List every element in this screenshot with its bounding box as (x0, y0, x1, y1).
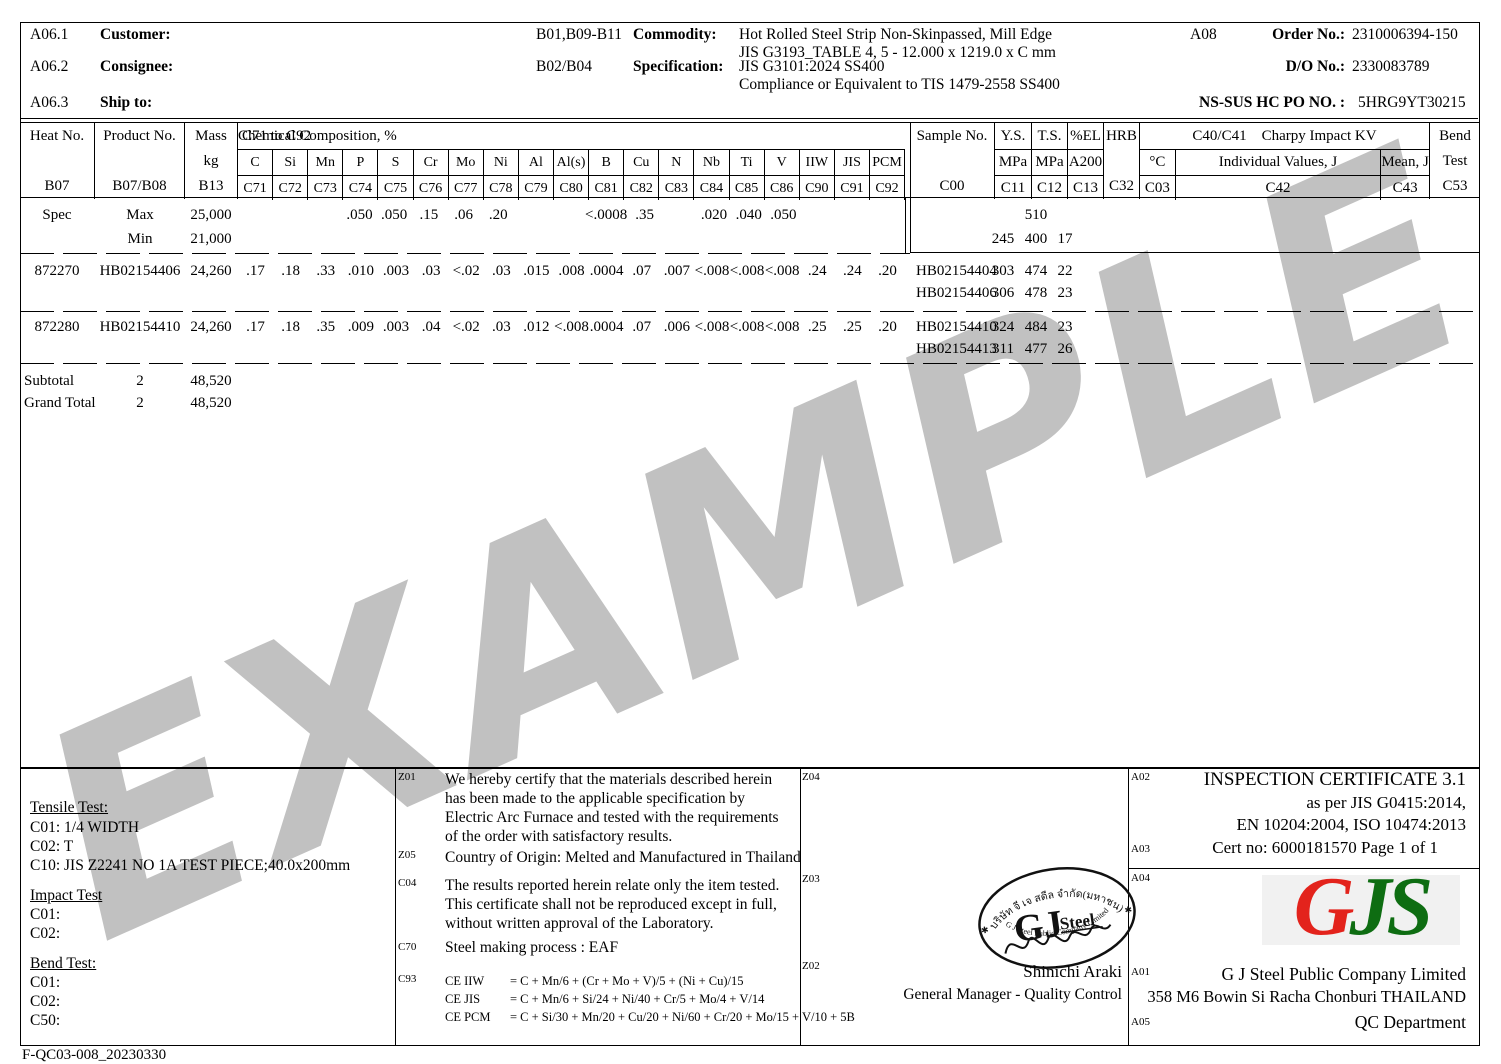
row2-sample2-ys: 311 (992, 338, 1014, 360)
row2-mass: 24,260 (190, 316, 231, 338)
ce-pcm-formula: = C + Si/30 + Mn/20 + Cu/20 + Ni/60 + Cr… (510, 1008, 855, 1026)
spec-max-label: Max (126, 204, 154, 226)
col-bend: BendTestC53 (1430, 123, 1480, 199)
z04-label: Z04 (802, 771, 820, 783)
z05-label: Z05 (398, 849, 416, 861)
bottom-divider-1 (395, 768, 396, 1045)
ce-jis-name: CE JIS (445, 990, 480, 1008)
row2-sample2-ts: 477 (1025, 338, 1048, 360)
field-code-b02: B02/B04 (536, 58, 592, 76)
signer-title: General Manager - Quality Control (800, 986, 1122, 1004)
row2-sample1-ts: 484 (1025, 316, 1048, 338)
ce-iiw-formula: = C + Mn/6 + (Cr + Mo + V)/5 + (Ni + Cu)… (510, 972, 744, 990)
cert-number: Cert no: 6000181570 Page 1 of 1 (1130, 838, 1466, 858)
row1-mass: 24,260 (190, 260, 231, 282)
subtotal-label: Subtotal (24, 370, 74, 392)
tensile-c01: C01: 1/4 WIDTH (30, 818, 139, 837)
col-hrb: HRBC32 (1104, 123, 1140, 199)
mass-code: B13 (185, 174, 237, 199)
row2-sample1-ys: 324 (992, 316, 1015, 338)
row1-sample1-el: 22 (1058, 260, 1073, 282)
z01-label: Z01 (398, 771, 416, 783)
do-no-value: 2330083789 (1352, 58, 1430, 76)
chemical-composition-header: C71 to C92 Chemical Composition, % CC71 … (238, 123, 905, 199)
stamp-gj-text: GJ (1011, 903, 1065, 951)
row1-sample1-ys: 303 (992, 260, 1015, 282)
charpy-title: Charpy Impact KV (1262, 128, 1377, 144)
grand-total-label: Grand Total (24, 392, 96, 414)
row1-sample2-el: 23 (1058, 282, 1073, 304)
c93-label: C93 (398, 973, 416, 985)
specification-line1: JIS G3101:2024 SS400 (739, 58, 885, 76)
consignee-label: Consignee: (100, 58, 173, 76)
ce-iiw-name: CE IIW (445, 972, 484, 990)
row2-sample2-el: 26 (1058, 338, 1073, 360)
row2-sample1-el: 23 (1058, 316, 1073, 338)
subtotal-count: 2 (136, 370, 144, 392)
gjs-logo: GJS (1262, 875, 1460, 945)
shipto-label: Ship to: (100, 94, 152, 112)
field-code-a062: A06.2 (30, 58, 68, 76)
z01-line3: Electric Arc Furnace and tested with the… (445, 808, 779, 827)
col-ts: T.S.MPaC12 (1032, 123, 1068, 199)
c04-line2: This certificate shall not be reproduced… (445, 895, 777, 914)
c04-line1: The results reported herein relate only … (445, 876, 779, 895)
bend-c50: C50: (30, 1011, 60, 1030)
row2-sample2-no: HB02154413 (916, 338, 997, 360)
charpy-title-row: C40/C41 Charpy Impact KV (1140, 123, 1429, 150)
table-header: Heat No. B07 Product No. B07/B08 Mass kg… (20, 122, 1480, 198)
spec-mass-min: 21,000 (190, 228, 231, 250)
row1-separator (20, 311, 1480, 312)
specification-label: Specification: (633, 58, 723, 76)
row2-sample1-no: HB02154410 (916, 316, 997, 338)
mass-label: Mass (185, 123, 237, 149)
row1-product-no: HB02154406 (100, 260, 181, 282)
col-mass: Mass kg B13 (185, 123, 238, 199)
col-heat-no: Heat No. B07 (20, 123, 95, 199)
stamp-star-left: ✱ (980, 925, 989, 936)
impact-test-title: Impact Test (30, 886, 102, 905)
col-charpy: C40/C41 Charpy Impact KV °CC03 Individua… (1140, 123, 1430, 199)
order-no-value: 2310006394-150 (1352, 26, 1458, 44)
col-sample-no: Sample No. C00 (910, 123, 995, 199)
company-name: G J Steel Public Company Limited (1130, 964, 1466, 985)
commodity-line1: Hot Rolled Steel Strip Non-Skinpassed, M… (739, 26, 1052, 44)
spec-min-label: Min (127, 228, 152, 250)
c70-label: C70 (398, 941, 416, 953)
ce-jis-formula: = C + Mn/6 + Si/24 + Ni/40 + Cr/5 + Mo/4… (510, 990, 764, 1008)
row2-product-no: HB02154410 (100, 316, 181, 338)
c04-line3: without written approval of the Laborato… (445, 914, 713, 933)
bend-test-title: Bend Test: (30, 954, 96, 973)
spec-ts-min: 400 (1025, 228, 1048, 250)
z01-line4: of the order with satisfactory results. (445, 827, 672, 846)
subtotal-mass: 48,520 (190, 370, 231, 392)
heat-no-code: B07 (20, 174, 94, 199)
spec-bottom-dashed-line (20, 253, 910, 254)
cert-standard-1: as per JIS G0415:2014, (1130, 793, 1466, 813)
chem-element-columns: CC71 SiC72 MnC73 PC74 SC75 CrC76 MoC77 N… (238, 150, 905, 200)
chem-title-row: C71 to C92 Chemical Composition, % (238, 123, 905, 150)
row2-chem-values: .17.18.35 .009.003.04 <.02.03.012 <.008.… (238, 316, 905, 338)
company-address: 358 M6 Bowin Si Racha Chonburi THAILAND (1130, 987, 1466, 1007)
bend-c02: C02: (30, 992, 60, 1011)
field-code-a063: A06.3 (30, 94, 68, 112)
c04-label: C04 (398, 877, 416, 889)
spec-mass-max: 25,000 (190, 204, 231, 226)
gjs-logo-g: G (1294, 860, 1350, 953)
field-code-a061: A06.1 (30, 26, 68, 44)
col-ys: Y.S.MPaC11 (995, 123, 1032, 199)
po-no-label: NS-SUS HC PO NO. : (1050, 94, 1345, 112)
spec-ts-max: 510 (1025, 204, 1048, 226)
row1-sample2-ts: 478 (1025, 282, 1048, 304)
row2-heat-no: 872280 (35, 316, 80, 338)
ce-pcm-name: CE PCM (445, 1008, 491, 1026)
certificate-page: A06.1 Customer: A06.2 Consignee: A06.3 S… (0, 0, 1501, 1060)
charpy-subcolumns: °CC03 Individual Values, JC42 Mean, JC43 (1140, 150, 1429, 200)
spec-label: Spec (42, 204, 71, 226)
row1-chem-values: .17.18.33 .010.003.03 <.02.03.015 .008.0… (238, 260, 905, 282)
tensile-c02: C02: T (30, 837, 73, 856)
row1-sample1-no: HB02154404 (916, 260, 997, 282)
charpy-code: C40/C41 (1192, 128, 1246, 144)
do-no-label: D/O No.: (1100, 58, 1345, 76)
spec-divider-1 (905, 198, 906, 253)
row1-sample2-ys: 306 (992, 282, 1015, 304)
product-no-code: B07/B08 (95, 174, 184, 199)
field-code-b01: B01,B09-B11 (536, 26, 622, 44)
c70-text: Steel making process : EAF (445, 938, 618, 957)
cert-standard-2: EN 10204:2004, ISO 10474:2013 (1130, 815, 1466, 835)
z03-label: Z03 (802, 873, 820, 885)
impact-c01: C01: (30, 905, 60, 924)
bend-c01: C01: (30, 973, 60, 992)
tensile-c10: C10: JIS Z2241 NO 1A TEST PIECE;40.0x200… (30, 856, 350, 875)
a04-label: A04 (1131, 872, 1150, 884)
mass-unit: kg (185, 149, 237, 174)
order-no-label: Order No.: (1100, 26, 1345, 44)
cert-title: INSPECTION CERTIFICATE 3.1 (1130, 769, 1466, 791)
po-no-value: 5HRG9YT30215 (1358, 94, 1466, 112)
qc-department: QC Department (1130, 1012, 1466, 1033)
col-product-no: Product No. B07/B08 (95, 123, 185, 199)
heat-no-label: Heat No. (20, 123, 94, 149)
tensile-test-title: Tensile Test: (30, 798, 108, 817)
row1-sample1-ts: 474 (1025, 260, 1048, 282)
gjs-logo-js: JS (1349, 860, 1428, 953)
grand-total-mass: 48,520 (190, 392, 231, 414)
row2-separator (20, 363, 1480, 364)
specification-line2: Compliance or Equivalent to TIS 1479-255… (739, 76, 1060, 94)
row1-heat-no: 872270 (35, 260, 80, 282)
sample-no-label: Sample No. (910, 123, 994, 149)
grand-total-count: 2 (136, 392, 144, 414)
sample-no-code: C00 (910, 174, 994, 199)
col-el: %ELA200C13 (1068, 123, 1104, 199)
customer-label: Customer: (100, 26, 171, 44)
z05-text: Country of Origin: Melted and Manufactur… (445, 848, 801, 867)
form-number-footer: F-QC03-008_20230330 (22, 1047, 166, 1064)
spec-ys-min: 245 (992, 228, 1015, 250)
chem-range: C71 to C92 (242, 123, 311, 149)
row1-sample2-no: HB02154406 (916, 282, 997, 304)
z01-line2: has been made to the applicable specific… (445, 789, 745, 808)
z01-line1: We hereby certify that the materials des… (445, 770, 772, 789)
spec-el-min: 17 (1058, 228, 1073, 250)
spec-chem-max-row: .050.050.15 .06.20 <.0008.35 .020.040 .0… (238, 204, 905, 226)
impact-c02: C02: (30, 924, 60, 943)
signer-name: Shinichi Araki (800, 962, 1122, 982)
product-no-label: Product No. (95, 123, 184, 149)
stamp-star-right: ✱ (1124, 905, 1133, 916)
commodity-label: Commodity: (633, 26, 717, 44)
